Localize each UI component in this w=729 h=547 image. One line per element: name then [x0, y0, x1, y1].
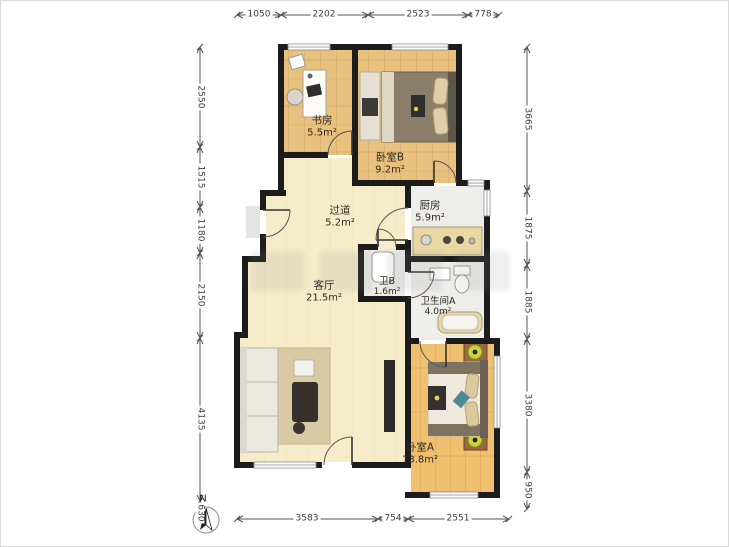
dim-right-5: 950 — [523, 479, 532, 500]
bedroom-b-window — [392, 44, 448, 50]
living-window — [254, 462, 316, 468]
room-label-living: 客厅 21.5m² — [306, 280, 342, 305]
dim-top-1: 1050 — [246, 11, 273, 20]
bedroom-b-pillow — [433, 77, 449, 104]
living-tv-panel — [384, 360, 395, 432]
dim-left-1: 2550 — [196, 84, 205, 111]
room-label-bedroom-b: 卧室B 9.2m² — [375, 152, 405, 177]
kitchen-bowl — [469, 238, 475, 244]
living-tray — [294, 360, 314, 376]
room-area: 4.0m² — [421, 307, 456, 318]
bedroom-b-cabinet — [362, 98, 378, 116]
bedroom-b-accent — [414, 107, 418, 111]
dim-right-1: 3665 — [523, 106, 532, 133]
dim-bottom-2: 754 — [382, 515, 403, 524]
room-area: 5.9m² — [415, 212, 445, 224]
bedroom-b-pillow — [433, 107, 449, 134]
room-label-bath-a: 卫生间A 4.0m² — [421, 296, 456, 318]
kitchen-burner — [456, 236, 464, 244]
dim-left-5: 4135 — [196, 406, 205, 433]
kitchen-burner — [443, 236, 451, 244]
bedroom-a-bed-rail — [428, 362, 486, 374]
room-label-bath-b: 卫B 1.6m² — [374, 276, 401, 298]
dim-bottom-1: 3583 — [294, 515, 321, 524]
room-label-study: 书房 5.5m² — [307, 115, 337, 140]
living-pouf — [293, 422, 305, 434]
bedroom-a-lamp-center — [473, 350, 478, 355]
room-name: 卫B — [374, 276, 401, 287]
dim-bottom-3: 2551 — [445, 515, 472, 524]
bedroom-b-headboard — [448, 72, 456, 142]
room-name: 卫生间A — [421, 296, 456, 307]
dim-right-3: 1885 — [523, 289, 532, 316]
dim-right-4: 3380 — [523, 392, 532, 419]
study-chair — [287, 89, 303, 105]
dim-left-2: 1515 — [196, 164, 205, 191]
room-area: 5.2m² — [325, 217, 355, 229]
room-name: 厨房 — [415, 200, 445, 213]
study-desk-lamp — [308, 74, 313, 79]
bedroom-a-pillow — [465, 401, 480, 426]
room-name: 过道 — [325, 205, 355, 218]
room-area: 1.6m² — [374, 287, 401, 298]
bedroom-a-headboard — [480, 360, 488, 438]
room-name: 卧室B — [375, 152, 405, 165]
room-name: 卧室A — [402, 442, 438, 455]
bedroom-a-lamp-center — [473, 438, 478, 443]
room-label-kitchen: 厨房 5.9m² — [415, 200, 445, 225]
bedroom-a-side-window — [494, 356, 500, 428]
study-window — [288, 44, 330, 50]
dim-left-6: 630 — [196, 502, 205, 523]
dim-left-4: 2150 — [196, 282, 205, 309]
room-area: 13.8m² — [402, 454, 438, 466]
room-area: 21.5m² — [306, 292, 342, 304]
dim-top-4: 778 — [472, 11, 493, 20]
dim-right-2: 1875 — [523, 215, 532, 242]
bedroom-b-bed-sheet — [382, 72, 394, 142]
dim-top-3: 2523 — [405, 11, 432, 20]
compass-label: N — [199, 494, 206, 505]
floorplan-page: 书房 5.5m² 卧室B 9.2m² 过道 5.2m² 厨房 5.9m² 客厅 … — [0, 0, 729, 547]
bedroom-b-runner — [411, 95, 425, 117]
bedroom-a-accent — [435, 396, 440, 401]
dim-left-3: 1180 — [196, 217, 205, 244]
dim-top-2: 2202 — [311, 11, 338, 20]
room-area: 5.5m² — [307, 127, 337, 139]
room-name: 书房 — [307, 115, 337, 128]
room-name: 客厅 — [306, 280, 342, 293]
room-label-bedroom-a: 卧室A 13.8m² — [402, 442, 438, 467]
living-coffee-table — [292, 382, 318, 422]
bedroom-a-bed-rail — [428, 424, 486, 436]
room-area: 9.2m² — [375, 164, 405, 176]
bedroom-a-bottom-window — [430, 492, 478, 498]
room-label-hallway: 过道 5.2m² — [325, 205, 355, 230]
kitchen-sink — [421, 235, 431, 245]
